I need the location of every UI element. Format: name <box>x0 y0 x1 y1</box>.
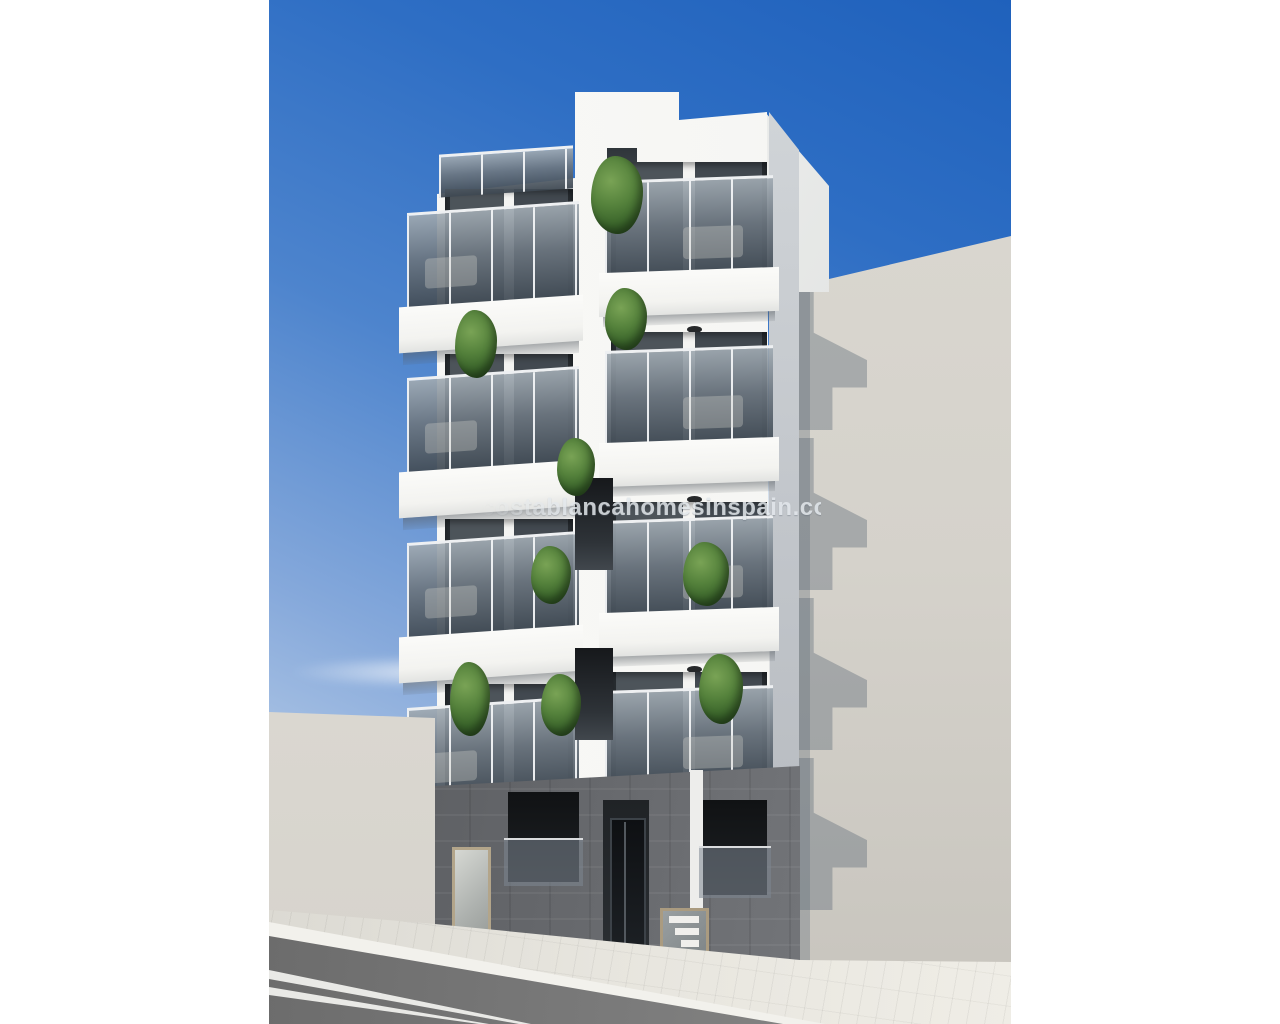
balcony-furniture <box>425 255 477 289</box>
stair-tread <box>675 928 699 935</box>
balcony-slab <box>599 607 779 657</box>
balcony-railing <box>407 201 579 312</box>
entrance-door-divider <box>624 822 626 950</box>
balcony-furniture <box>425 585 477 619</box>
balcony-railing <box>407 366 579 477</box>
balcony-slab <box>599 437 779 487</box>
watermark-text: costablancahomesinspain.com <box>481 494 821 522</box>
balcony-railing <box>605 345 773 452</box>
stair-tread <box>681 940 699 947</box>
ground-window-left-railing <box>504 838 583 886</box>
real-estate-render: costablancahomesinspain.com <box>0 0 1280 1024</box>
balcony-furniture <box>425 420 477 454</box>
stair-tread <box>669 916 699 923</box>
photo-content: costablancahomesinspain.com <box>269 0 1011 1024</box>
center-recess-window <box>575 648 613 740</box>
balcony-furniture <box>683 395 743 429</box>
balcony-furniture <box>683 225 743 259</box>
balcony-furniture <box>683 735 743 769</box>
ground-window-right-railing <box>699 846 771 898</box>
entrance-door <box>610 818 646 958</box>
